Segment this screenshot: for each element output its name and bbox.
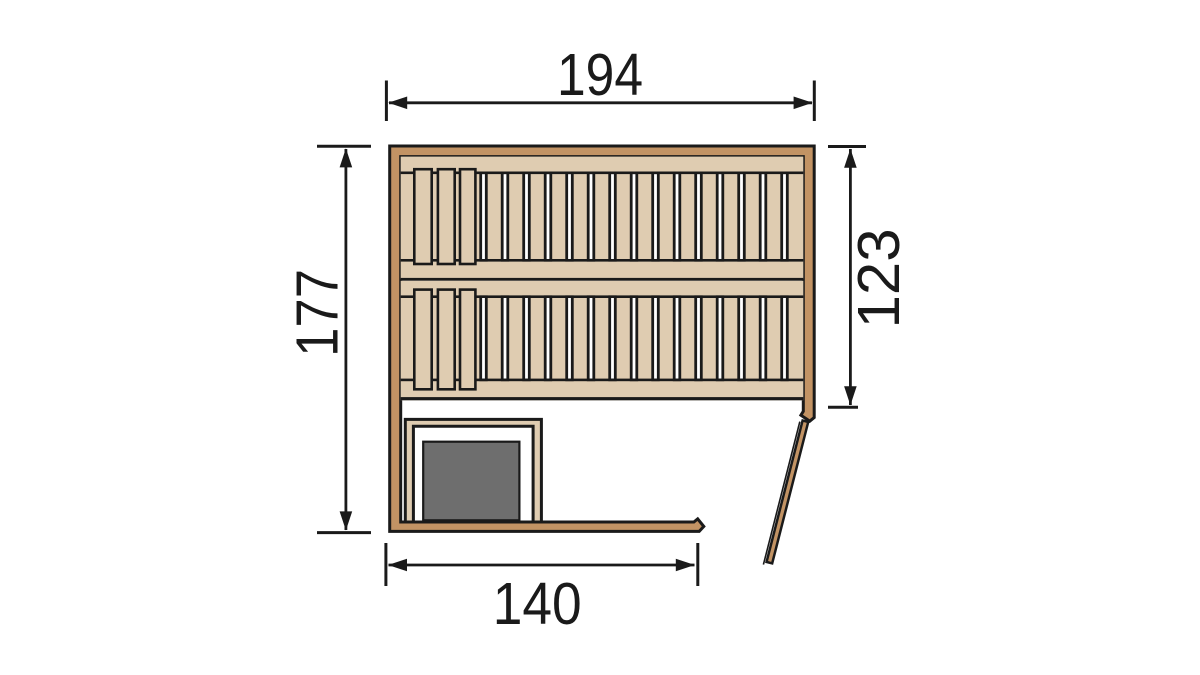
svg-text:194: 194 [557, 42, 643, 108]
svg-text:140: 140 [493, 571, 582, 637]
svg-text:177: 177 [284, 269, 350, 357]
svg-text:123: 123 [846, 228, 912, 328]
